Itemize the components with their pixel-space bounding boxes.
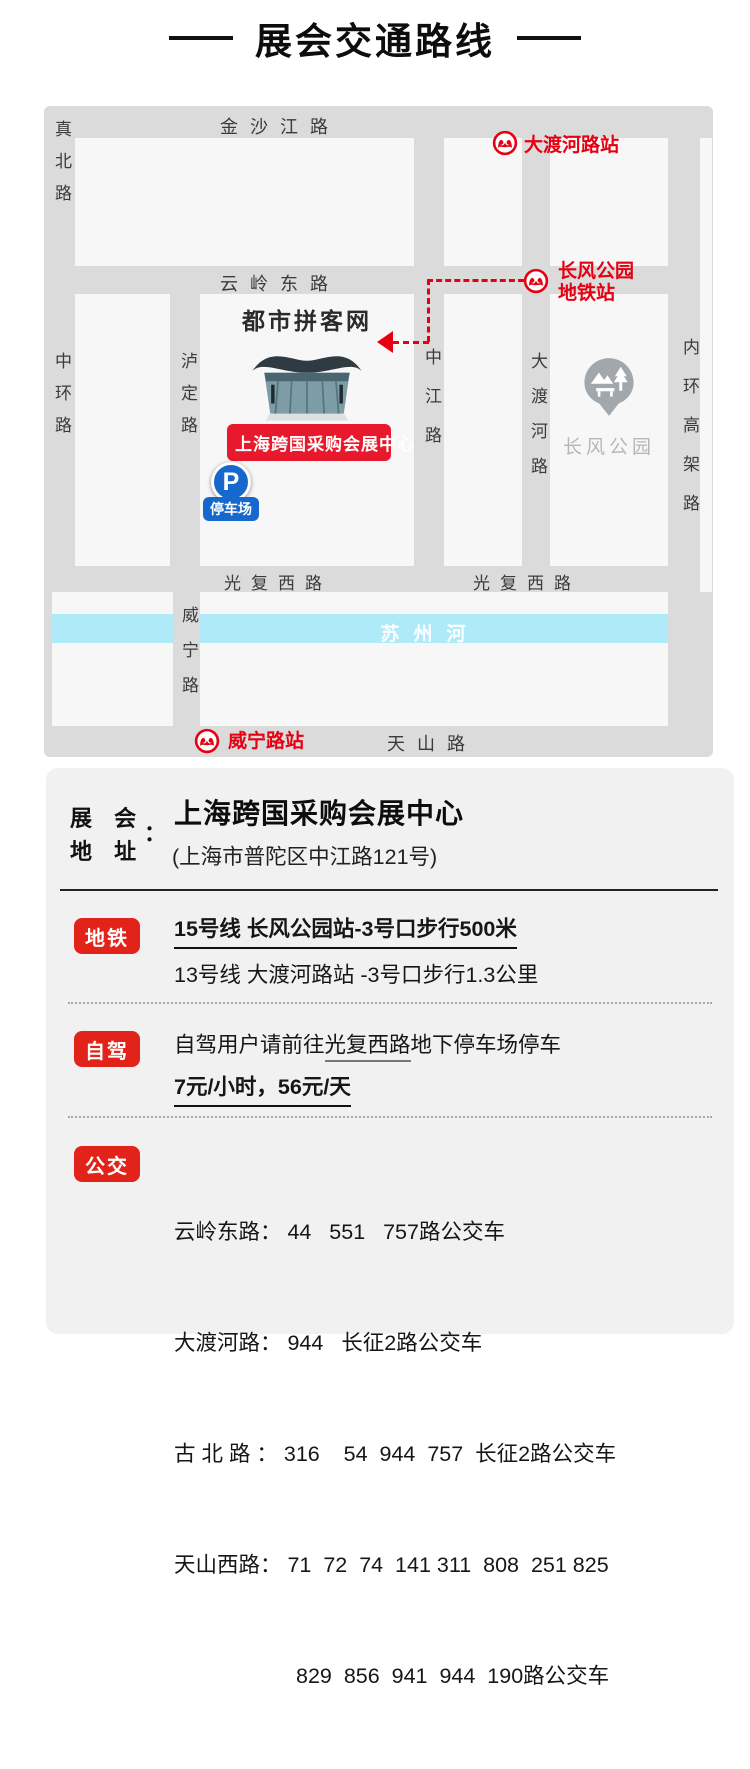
route-dash-bottom — [393, 341, 429, 344]
venue-name-badge: 上海跨国采购会展中心 — [227, 424, 391, 461]
station-label-changfeng-line1: 长风公园 — [558, 261, 634, 283]
address-label: 展 会地 址 — [70, 802, 144, 868]
road-label-zhenbei: 真北路 — [49, 120, 74, 216]
road-label-daduhe: 大渡河路 — [525, 352, 550, 492]
page-title: 展会交通路线 — [255, 11, 495, 65]
bus-line-daduhe: 大渡河路： 944 长征2路公交车 — [174, 1325, 616, 1362]
driving-badge: 自驾 — [74, 1031, 140, 1067]
road-label-yunling-east: 云岭东路 — [220, 270, 340, 296]
parking-p-icon: P — [211, 462, 251, 502]
map-block — [200, 592, 668, 614]
station-label-weining: 威宁路站 — [228, 731, 304, 753]
title-right-dash — [517, 36, 581, 40]
driving-price-text: 7元/小时，56元/天 — [174, 1070, 351, 1107]
bus-routes: 云岭东路： 44 551 757路公交车 大渡河路： 944 长征2路公交车 古… — [174, 1140, 616, 1769]
park-pin-icon — [583, 356, 635, 418]
driving-price: 7元/小时，56元/天 — [174, 1070, 351, 1107]
metro-divider — [68, 1002, 712, 1004]
shanghai-metro-icon — [194, 728, 220, 754]
route-dash-top — [427, 279, 524, 282]
road-label-guangfu-west-2: 光复西路 — [473, 569, 581, 594]
shanghai-metro-icon — [492, 130, 518, 156]
station-label-changfeng-line2: 地铁站 — [558, 283, 634, 305]
metro-line-1: 15号线 长风公园站-3号口步行500米 — [174, 912, 517, 949]
station-label-changfeng: 长风公园 地铁站 — [558, 261, 634, 305]
transit-map: 苏州河 金沙江路 云岭东路 光复西路 光复西路 天山路 真北路 中环路 泸定路 … — [44, 106, 713, 757]
bus-line-tianshanxi: 天山西路： 71 72 74 141 311 808 251 825 — [174, 1547, 616, 1584]
metro-badge: 地铁 — [74, 918, 140, 954]
parking-tag: 停车场 — [203, 497, 259, 521]
road-label-weining: 威宁路 — [176, 606, 201, 711]
map-block — [550, 138, 668, 266]
road-label-zhongjiang: 中江路 — [419, 348, 444, 465]
map-block — [52, 643, 173, 726]
bus-line-gubei: 古 北 路 ： 316 54 944 757 长征2路公交车 — [174, 1436, 616, 1473]
address-colon: ： — [144, 816, 166, 848]
route-dash-vertical — [427, 279, 430, 342]
site-name: 都市拼客网 — [242, 302, 372, 336]
road-label-guangfu-west-1: 光复西路 — [224, 569, 332, 594]
driving-divider — [68, 1116, 712, 1118]
exhibition-center-building-image — [246, 342, 368, 424]
map-block — [444, 138, 522, 266]
driving-prefix: 自驾用户请前往 — [174, 1033, 325, 1057]
address-divider — [60, 889, 718, 891]
shanghai-metro-icon — [523, 268, 549, 294]
driving-line-1: 自驾用户请前往光复西路地下停车场停车 — [174, 1028, 561, 1062]
map-block — [52, 592, 173, 614]
driving-suffix: 地下停车场停车 — [411, 1033, 562, 1057]
title-left-dash — [169, 36, 233, 40]
bus-badge: 公交 — [74, 1146, 140, 1182]
station-label-daduhe: 大渡河路站 — [524, 135, 619, 157]
road-label-neihuan-elevated: 内环高架路 — [677, 338, 702, 533]
info-panel: 展 会地 址 ： 上海跨国采购会展中心 (上海市普陀区中江路121号) 地铁 1… — [46, 768, 734, 1334]
metro-line-2: 13号线 大渡河路站 -3号口步行1.3公里 — [174, 958, 538, 989]
address-label-line1: 展 会 — [70, 806, 144, 831]
road-label-luding: 泸定路 — [175, 352, 200, 448]
venue-address-title: 上海跨国采购会展中心 — [174, 792, 464, 832]
road-label-zhonghuan: 中环路 — [49, 352, 74, 448]
map-block — [75, 294, 170, 566]
map-block — [75, 138, 414, 266]
driving-road: 光复西路 — [325, 1028, 411, 1062]
road-label-jinshajiang: 金沙江路 — [220, 113, 340, 139]
road-label-tianshan: 天山路 — [387, 730, 477, 756]
route-arrowhead-icon — [377, 331, 393, 353]
park-block — [550, 294, 668, 566]
park-label: 长风公园 — [563, 432, 655, 459]
page-header: 展会交通路线 — [0, 12, 750, 64]
bus-line-yunling: 云岭东路： 44 551 757路公交车 — [174, 1214, 616, 1251]
map-block — [444, 294, 522, 566]
venue-address-detail: (上海市普陀区中江路121号) — [172, 840, 437, 871]
bus-line-tianshanxi-continued: 829 856 941 944 190路公交车 — [174, 1658, 616, 1695]
address-label-line2: 地 址 — [70, 839, 144, 864]
suzhou-river-west — [52, 614, 173, 643]
river-label: 苏州河 — [380, 619, 479, 646]
metro-line-1-text: 15号线 长风公园站-3号口步行500米 — [174, 912, 517, 949]
map-block — [200, 643, 668, 726]
